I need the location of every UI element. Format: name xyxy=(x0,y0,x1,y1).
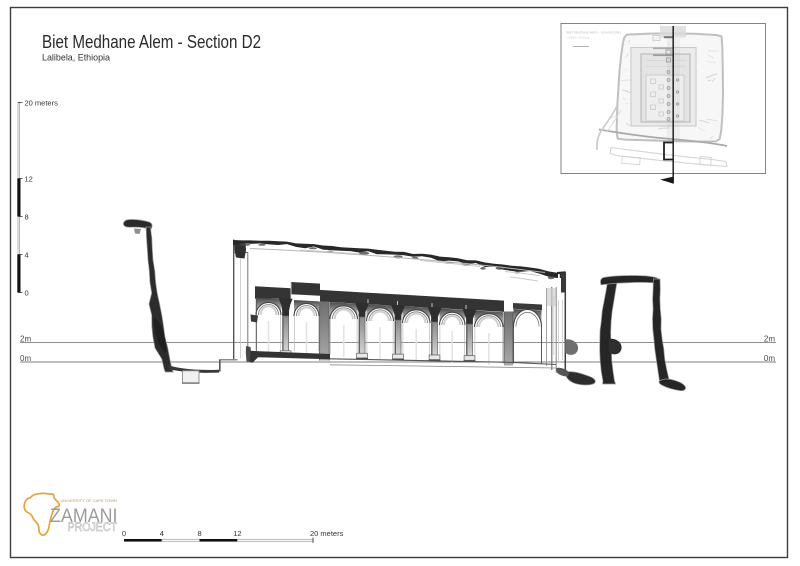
svg-text:0m: 0m xyxy=(764,354,775,363)
svg-text:20 meters: 20 meters xyxy=(25,99,59,108)
svg-text:0: 0 xyxy=(25,289,29,298)
svg-text:12: 12 xyxy=(233,529,241,538)
svg-text:Lalibela, Ethiopia: Lalibela, Ethiopia xyxy=(567,36,590,40)
svg-text:UNIVERSITY OF CAPE TOWN: UNIVERSITY OF CAPE TOWN xyxy=(61,499,118,503)
svg-text:2m: 2m xyxy=(20,334,31,343)
svg-text:PROJECT: PROJECT xyxy=(68,522,118,534)
svg-text:Biet Medhane Alem - Section D2: Biet Medhane Alem - Section D2 xyxy=(42,32,261,52)
svg-text:0: 0 xyxy=(122,529,126,538)
svg-text:Lalibela, Ethiopia: Lalibela, Ethiopia xyxy=(42,52,111,63)
svg-text:12: 12 xyxy=(25,175,33,184)
svg-text:4: 4 xyxy=(160,529,164,538)
svg-text:8: 8 xyxy=(198,529,202,538)
svg-text:Biet Medhane Alem - Ground pla: Biet Medhane Alem - Ground plan xyxy=(567,31,621,35)
svg-text:8: 8 xyxy=(25,213,29,222)
svg-text:2m: 2m xyxy=(764,334,775,343)
svg-text:20 meters: 20 meters xyxy=(310,529,344,538)
svg-text:0m: 0m xyxy=(20,354,31,363)
svg-text:4: 4 xyxy=(25,251,29,260)
